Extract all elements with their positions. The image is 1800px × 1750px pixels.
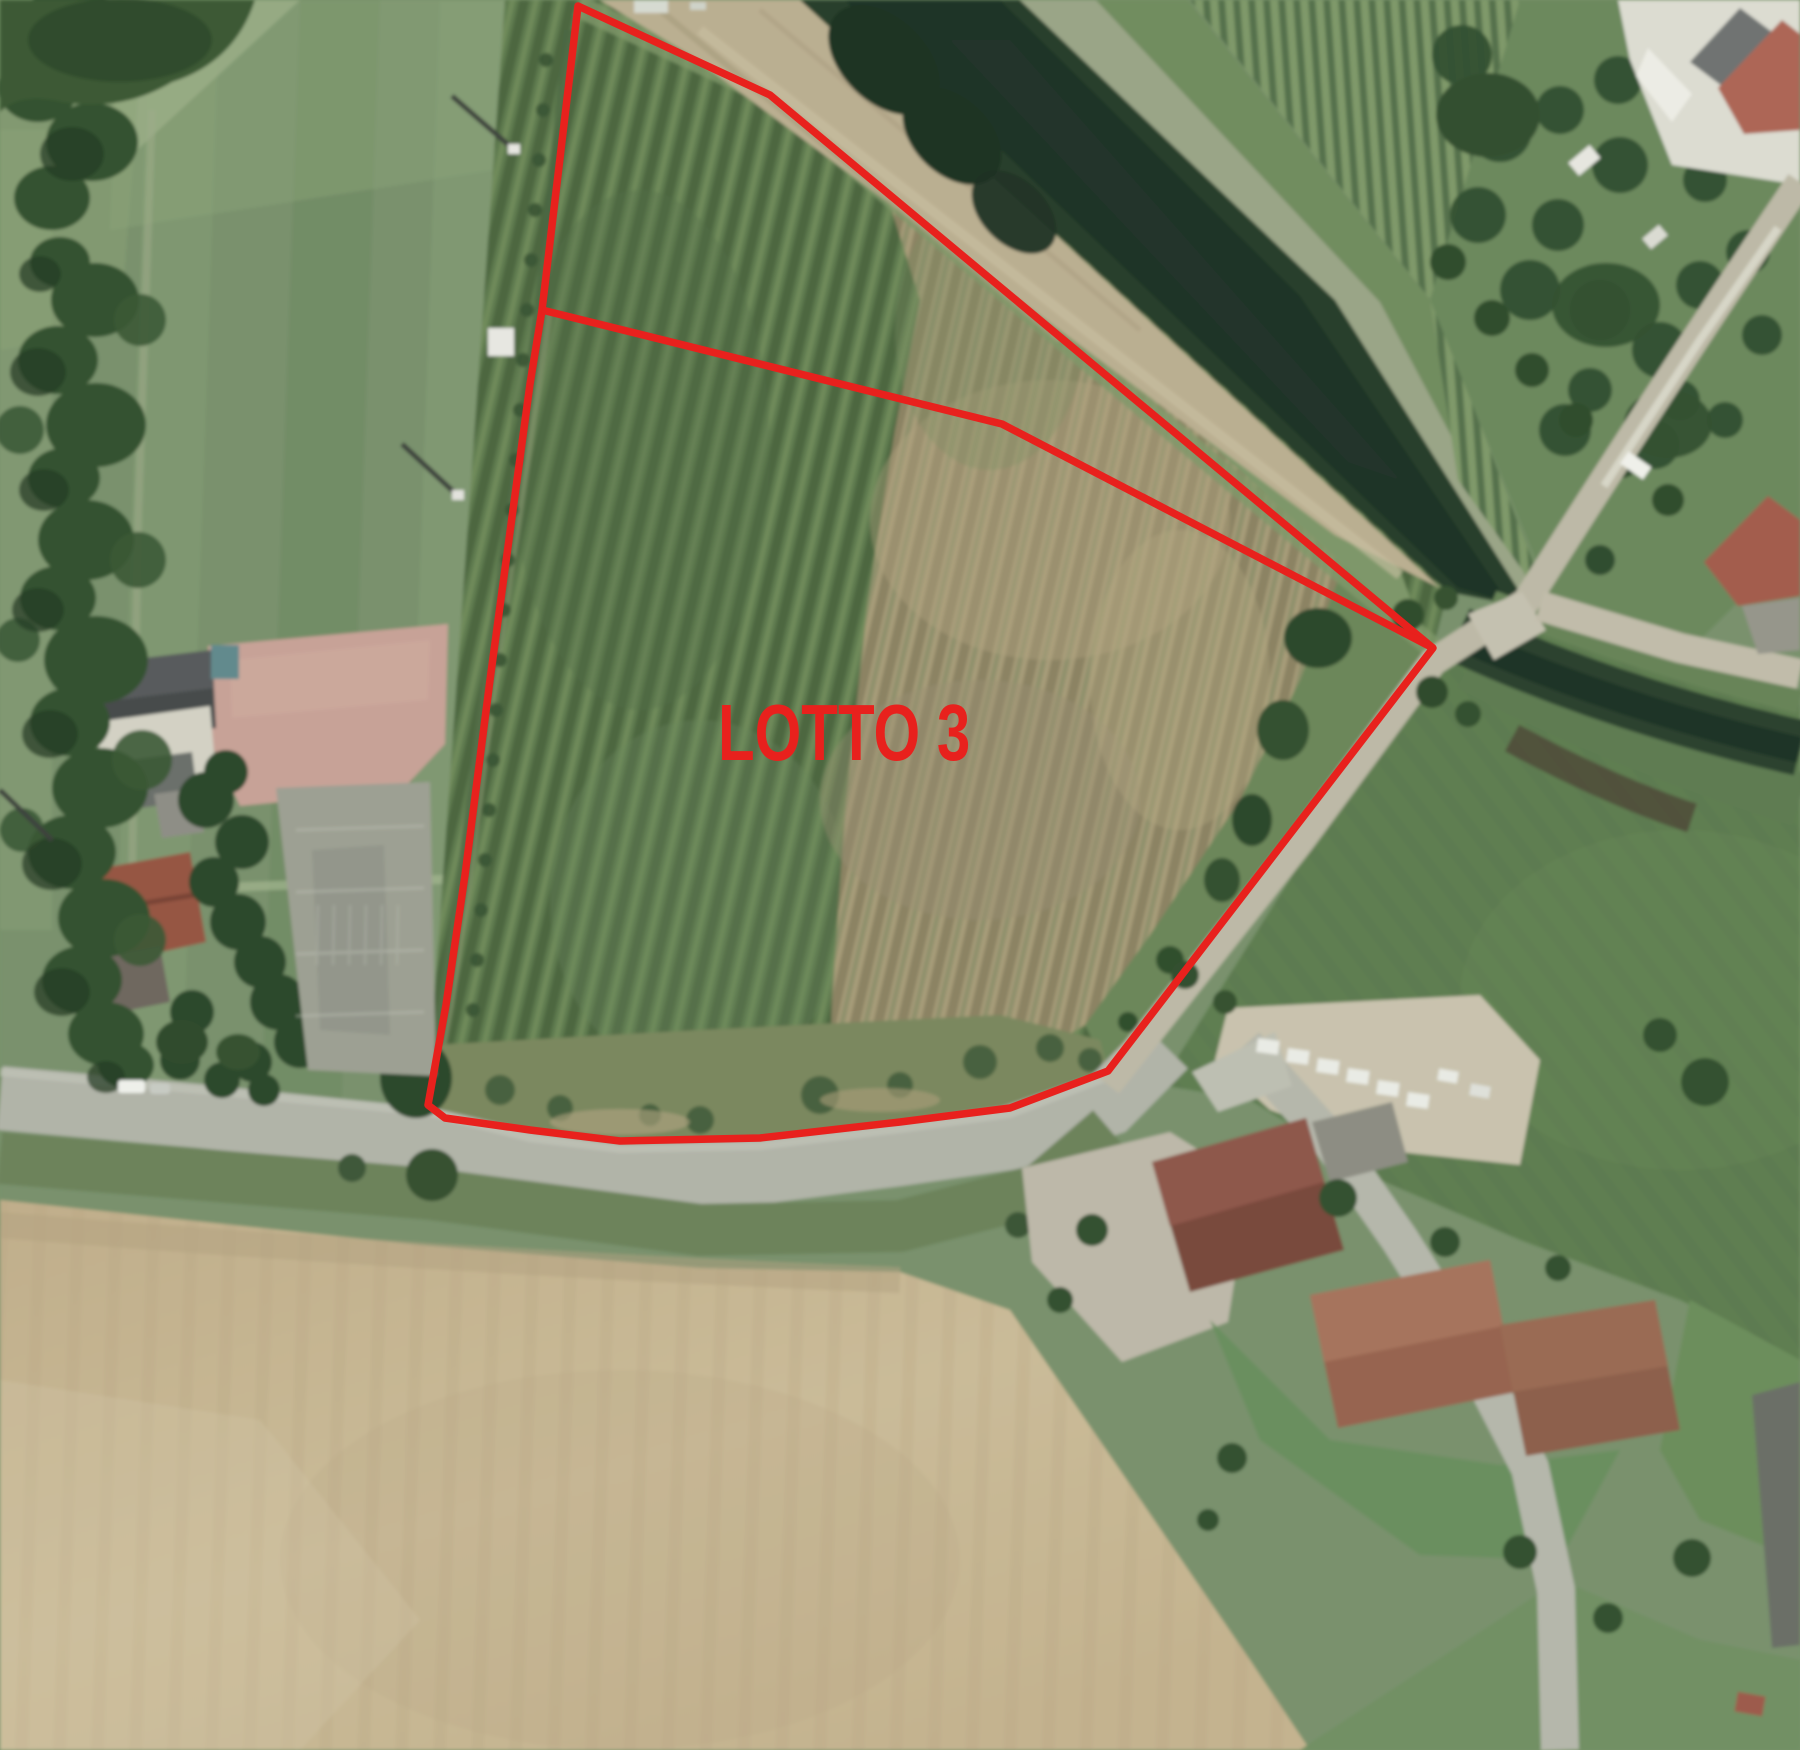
svg-text:LOTTO 3: LOTTO 3	[718, 688, 970, 777]
